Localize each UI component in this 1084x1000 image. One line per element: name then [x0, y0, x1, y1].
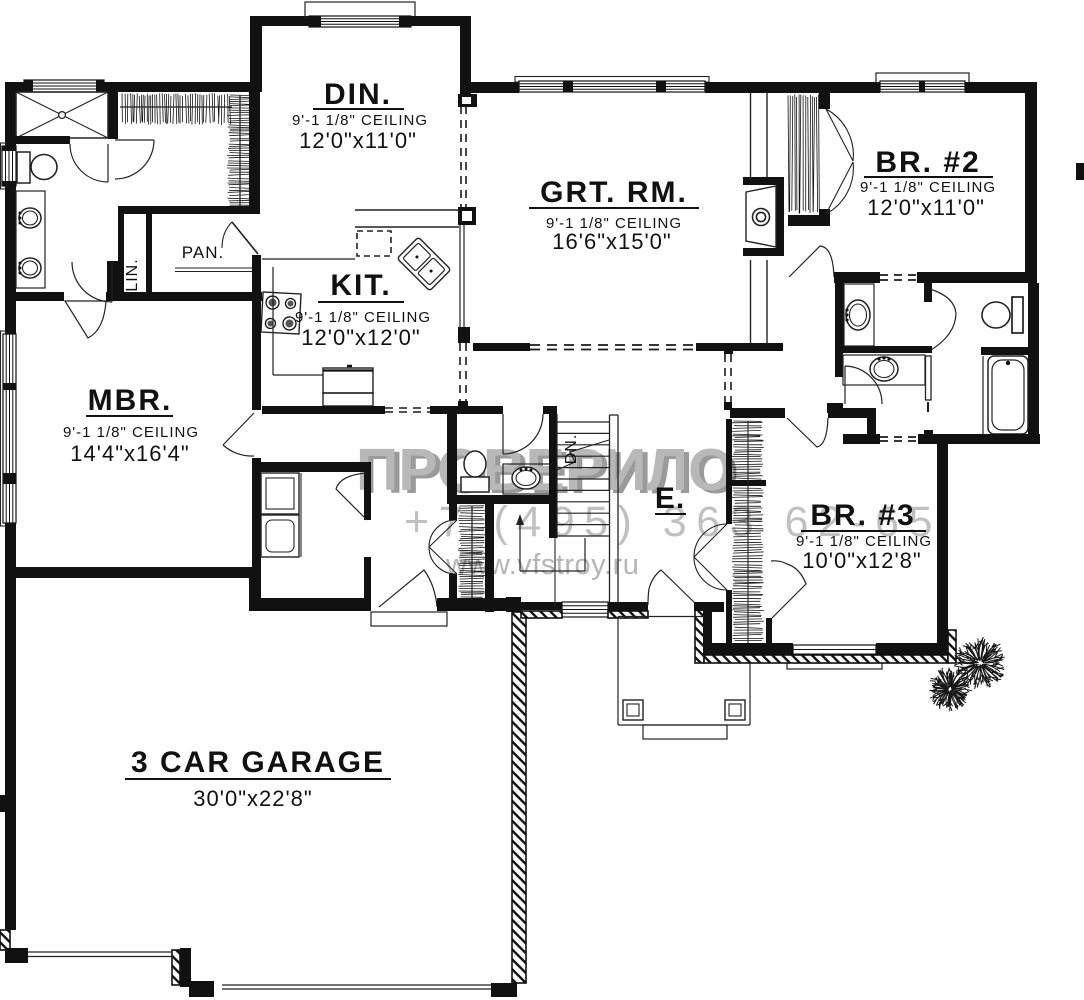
- svg-text:16'6"x15'0": 16'6"x15'0": [552, 229, 671, 254]
- svg-text:30'0"x22'8": 30'0"x22'8": [193, 786, 312, 811]
- svg-text:10'0"x12'8": 10'0"x12'8": [802, 548, 921, 573]
- svg-text:3 CAR GARAGE: 3 CAR GARAGE: [131, 746, 385, 779]
- svg-text:BR. #3: BR. #3: [810, 499, 915, 532]
- svg-text:BR. #2: BR. #2: [875, 146, 980, 179]
- svg-text:9'-1 1/8" CEILING: 9'-1 1/8" CEILING: [295, 309, 431, 326]
- svg-text:12'0"x12'0": 12'0"x12'0": [301, 325, 420, 350]
- svg-text:PAN.: PAN.: [182, 243, 224, 262]
- svg-text:LIN.: LIN.: [124, 258, 141, 291]
- svg-text:12'0"x11'0": 12'0"x11'0": [299, 128, 417, 153]
- svg-text:MBR.: MBR.: [88, 384, 173, 417]
- svg-text:9'-1 1/8" CEILING: 9'-1 1/8" CEILING: [63, 424, 199, 441]
- svg-text:DN.: DN.: [563, 434, 580, 465]
- svg-text:GRT. RM.: GRT. RM.: [540, 176, 688, 209]
- svg-text:9'-1 1/8" CEILING: 9'-1 1/8" CEILING: [860, 179, 996, 196]
- svg-text:14'4"x16'4": 14'4"x16'4": [70, 441, 189, 466]
- svg-text:KIT.: KIT.: [330, 269, 391, 302]
- svg-text:DIN.: DIN.: [324, 78, 392, 111]
- svg-text:12'0"x11'0": 12'0"x11'0": [867, 195, 985, 220]
- svg-text:9'-1 1/8" CEILING: 9'-1 1/8" CEILING: [292, 112, 428, 129]
- svg-text:E.: E.: [655, 482, 685, 515]
